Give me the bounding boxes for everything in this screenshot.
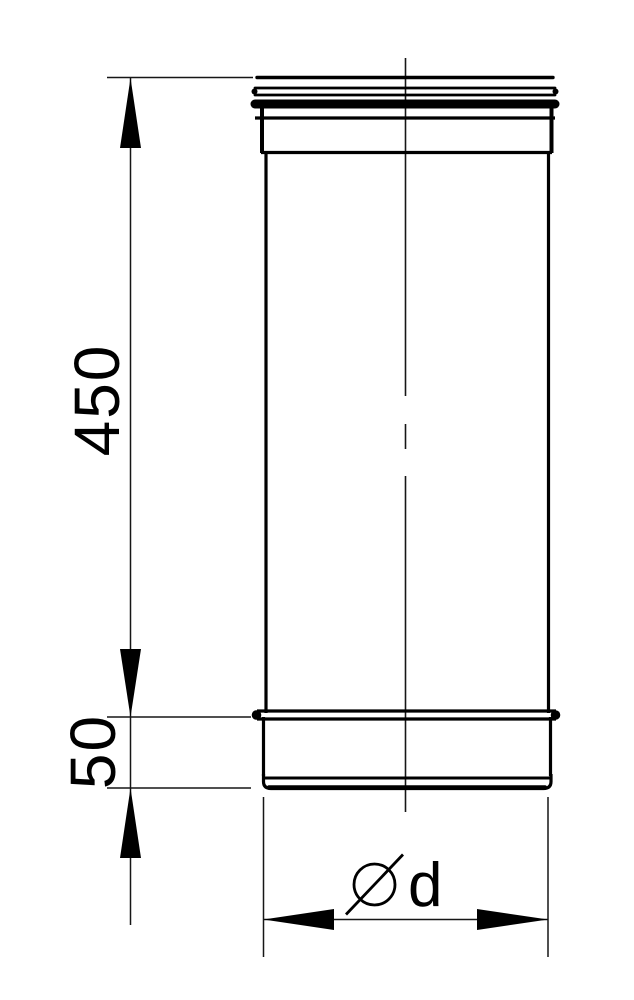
dim-arrow-up-socket [120, 788, 141, 858]
dim-arrow-up [120, 78, 141, 148]
dim-arrow-down [120, 649, 141, 717]
dimension-450: 450 [61, 78, 253, 926]
diameter-label: d [408, 851, 442, 920]
dim-arrow-right [477, 909, 548, 930]
dimension-450-label: 450 [61, 344, 133, 457]
pipe-body [266, 152, 549, 713]
diameter-symbol-icon [346, 855, 403, 915]
pipe-section-drawing: 450 50 d [0, 0, 634, 1000]
dimension-50: 50 [57, 714, 251, 858]
dim-arrow-left [264, 909, 335, 930]
dimension-50-label: 50 [57, 714, 129, 789]
technical-drawing-canvas: 450 50 d [0, 0, 634, 1000]
dimension-diameter: d [264, 797, 549, 957]
